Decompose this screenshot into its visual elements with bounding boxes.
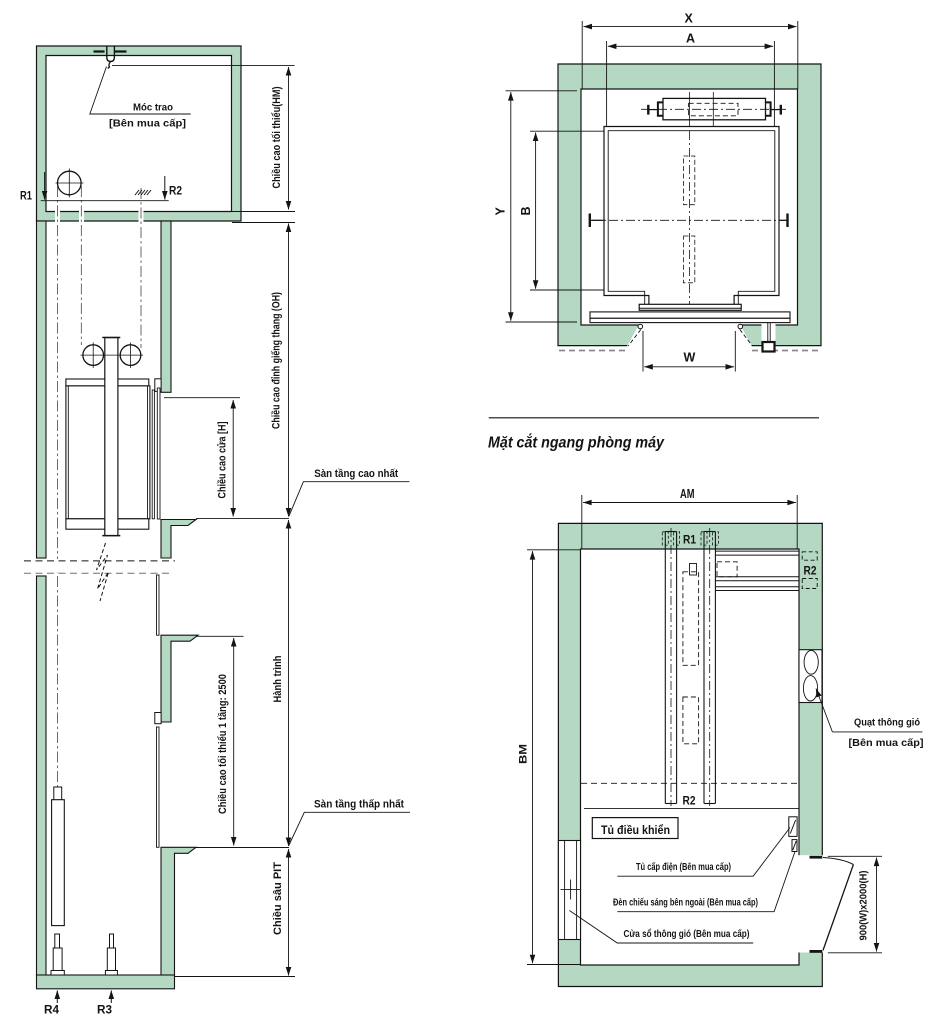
svg-text:Sàn tầng cao nhất: Sàn tầng cao nhất — [314, 468, 398, 480]
svg-text:Tủ điều khiển: Tủ điều khiển — [601, 825, 670, 837]
svg-text:R3: R3 — [97, 1005, 112, 1017]
svg-text:R2: R2 — [169, 186, 182, 198]
svg-text:Tủ cấp điện (Bên mua cấp): Tủ cấp điện (Bên mua cấp) — [636, 861, 731, 873]
svg-text:R4: R4 — [44, 1005, 60, 1017]
svg-text:Đèn chiếu sáng bên ngoài (Bên: Đèn chiếu sáng bên ngoài (Bên mua cấp) — [613, 897, 758, 909]
svg-text:Cửa sổ thông gió (Bên mua cấp): Cửa sổ thông gió (Bên mua cấp) — [624, 928, 750, 940]
svg-text:AM: AM — [680, 487, 695, 501]
svg-text:Chiều sâu PIT: Chiều sâu PIT — [272, 862, 284, 935]
svg-text:[Bên mua cấp]: [Bên mua cấp] — [849, 737, 924, 749]
svg-text:B: B — [519, 206, 533, 215]
svg-text:Chiều cao cửa [H]: Chiều cao cửa [H] — [217, 421, 229, 498]
svg-text:Chiều cao tối thiểu(HM): Chiều cao tối thiểu(HM) — [271, 86, 283, 188]
svg-text:[Bên mua cấp]: [Bên mua cấp] — [109, 118, 186, 130]
svg-text:Hành trình: Hành trình — [272, 655, 284, 702]
svg-text:W: W — [684, 351, 696, 365]
svg-text:R1: R1 — [683, 535, 697, 547]
svg-text:Y: Y — [494, 207, 508, 216]
svg-text:R2: R2 — [804, 566, 817, 578]
svg-text:R2: R2 — [683, 796, 696, 808]
svg-text:BM: BM — [518, 744, 530, 764]
svg-text:Quạt thông gió: Quạt thông gió — [854, 717, 920, 729]
svg-text:Mặt cắt ngang phòng máy: Mặt cắt ngang phòng máy — [488, 434, 665, 452]
svg-text:R1: R1 — [20, 191, 32, 203]
svg-text:Sàn tầng thấp nhất: Sàn tầng thấp nhất — [314, 799, 404, 811]
svg-text:X: X — [685, 12, 694, 26]
svg-text:Chiều cao tối thiểu 1 tầng: 25: Chiều cao tối thiểu 1 tầng: 2500 — [217, 674, 229, 814]
svg-text:Móc trao: Móc trao — [133, 102, 173, 114]
svg-text:Chiều cao đỉnh giếng thang (OH: Chiều cao đỉnh giếng thang (OH) — [271, 292, 283, 429]
svg-text:A: A — [686, 32, 695, 46]
svg-text:900(W)x2000(H): 900(W)x2000(H) — [858, 871, 870, 941]
